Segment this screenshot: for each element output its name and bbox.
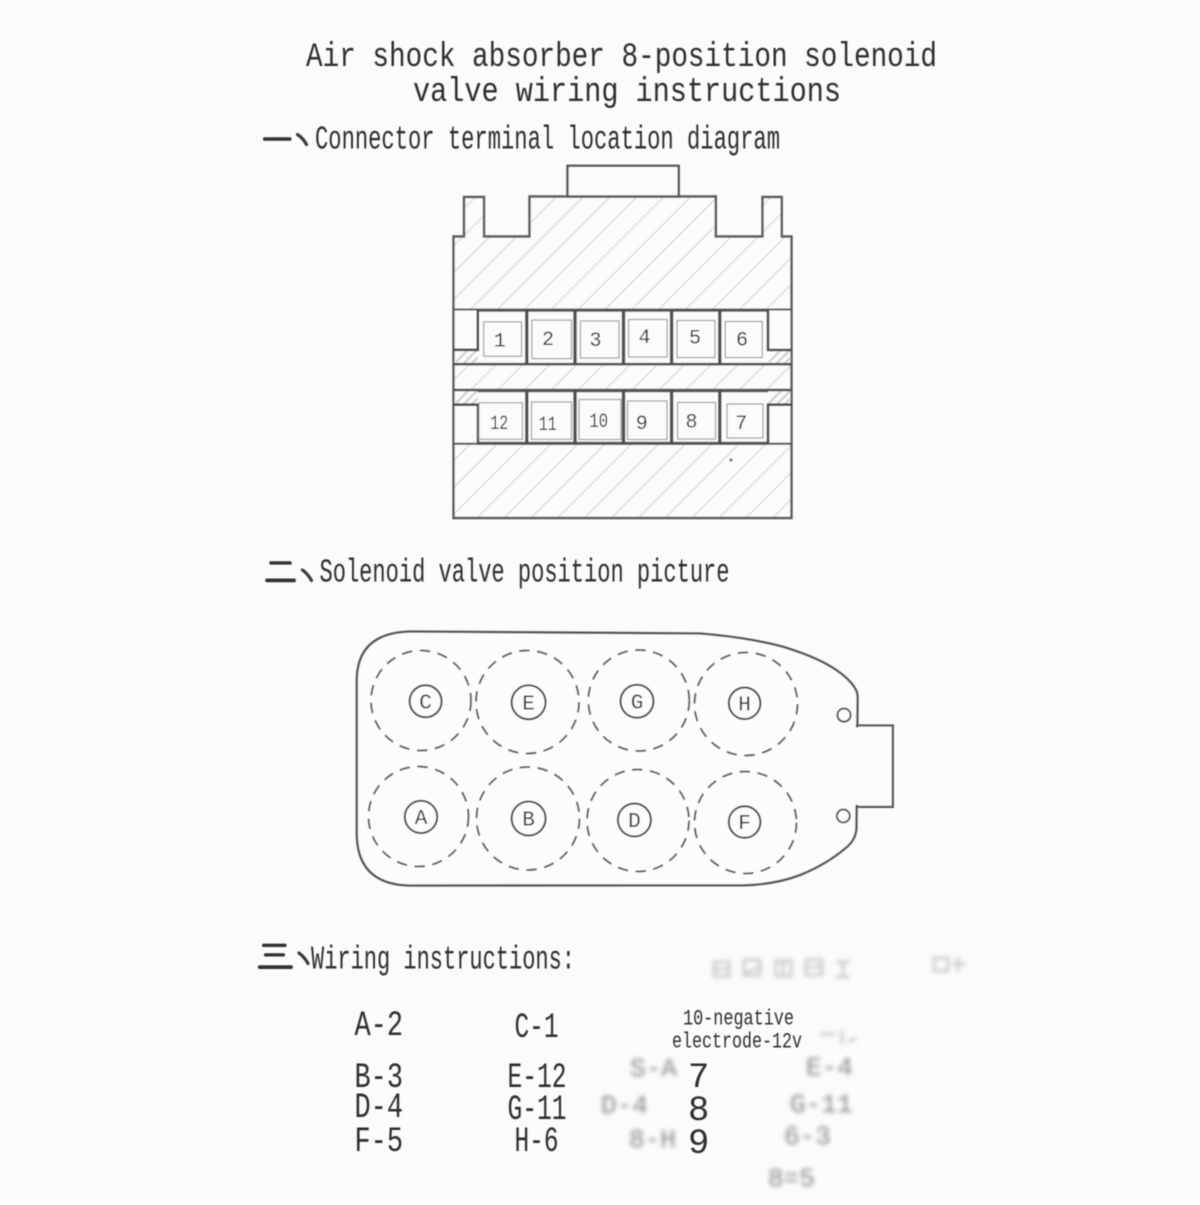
svg-text:H: H	[738, 694, 751, 717]
svg-text:F-5: F-5	[355, 1121, 404, 1162]
svg-text:8-H: 8-H	[629, 1125, 676, 1155]
svg-text:5: 5	[689, 328, 701, 351]
svg-text:6-3: 6-3	[784, 1122, 831, 1152]
svg-text:2: 2	[542, 329, 554, 352]
svg-text:8: 8	[685, 412, 697, 435]
svg-text:11: 11	[539, 414, 557, 437]
svg-text:1: 1	[494, 331, 506, 354]
svg-text:E: E	[522, 693, 535, 716]
svg-text:electrode-12v: electrode-12v	[672, 1030, 802, 1055]
svg-text:Air shock absorber 8-position: Air shock absorber 8-position solenoid	[306, 38, 937, 77]
svg-text:9: 9	[636, 413, 648, 436]
svg-text:10-negative: 10-negative	[683, 1007, 794, 1032]
svg-text:6: 6	[736, 330, 748, 353]
svg-text:A-2: A-2	[355, 1005, 404, 1046]
svg-text:C: C	[419, 692, 432, 715]
svg-text:10: 10	[589, 411, 608, 434]
svg-text:E-4: E-4	[806, 1053, 853, 1083]
svg-text:Wiring instructions:: Wiring instructions:	[311, 942, 575, 979]
svg-text:D-4: D-4	[601, 1091, 648, 1121]
svg-text:Solenoid valve position pictur: Solenoid valve position picture	[320, 555, 730, 592]
svg-text:7: 7	[735, 413, 747, 436]
svg-text:F: F	[738, 813, 751, 836]
svg-text:G-11: G-11	[790, 1090, 852, 1120]
svg-text:B: B	[522, 810, 535, 833]
svg-text:valve wiring instructions: valve wiring instructions	[413, 73, 841, 112]
svg-text:12: 12	[490, 413, 508, 436]
svg-text:4: 4	[638, 327, 650, 350]
svg-text:3: 3	[589, 330, 601, 353]
svg-text:S-A: S-A	[630, 1054, 677, 1084]
svg-text:8=5: 8=5	[768, 1164, 815, 1194]
svg-text:Connector terminal location di: Connector terminal location diagram	[315, 122, 780, 159]
svg-text:H-6: H-6	[515, 1121, 559, 1162]
svg-text:G: G	[631, 692, 644, 715]
svg-text:C-1: C-1	[515, 1007, 559, 1048]
svg-text:A: A	[415, 808, 428, 831]
svg-text:D: D	[628, 811, 641, 834]
svg-text:9: 9	[688, 1123, 709, 1164]
